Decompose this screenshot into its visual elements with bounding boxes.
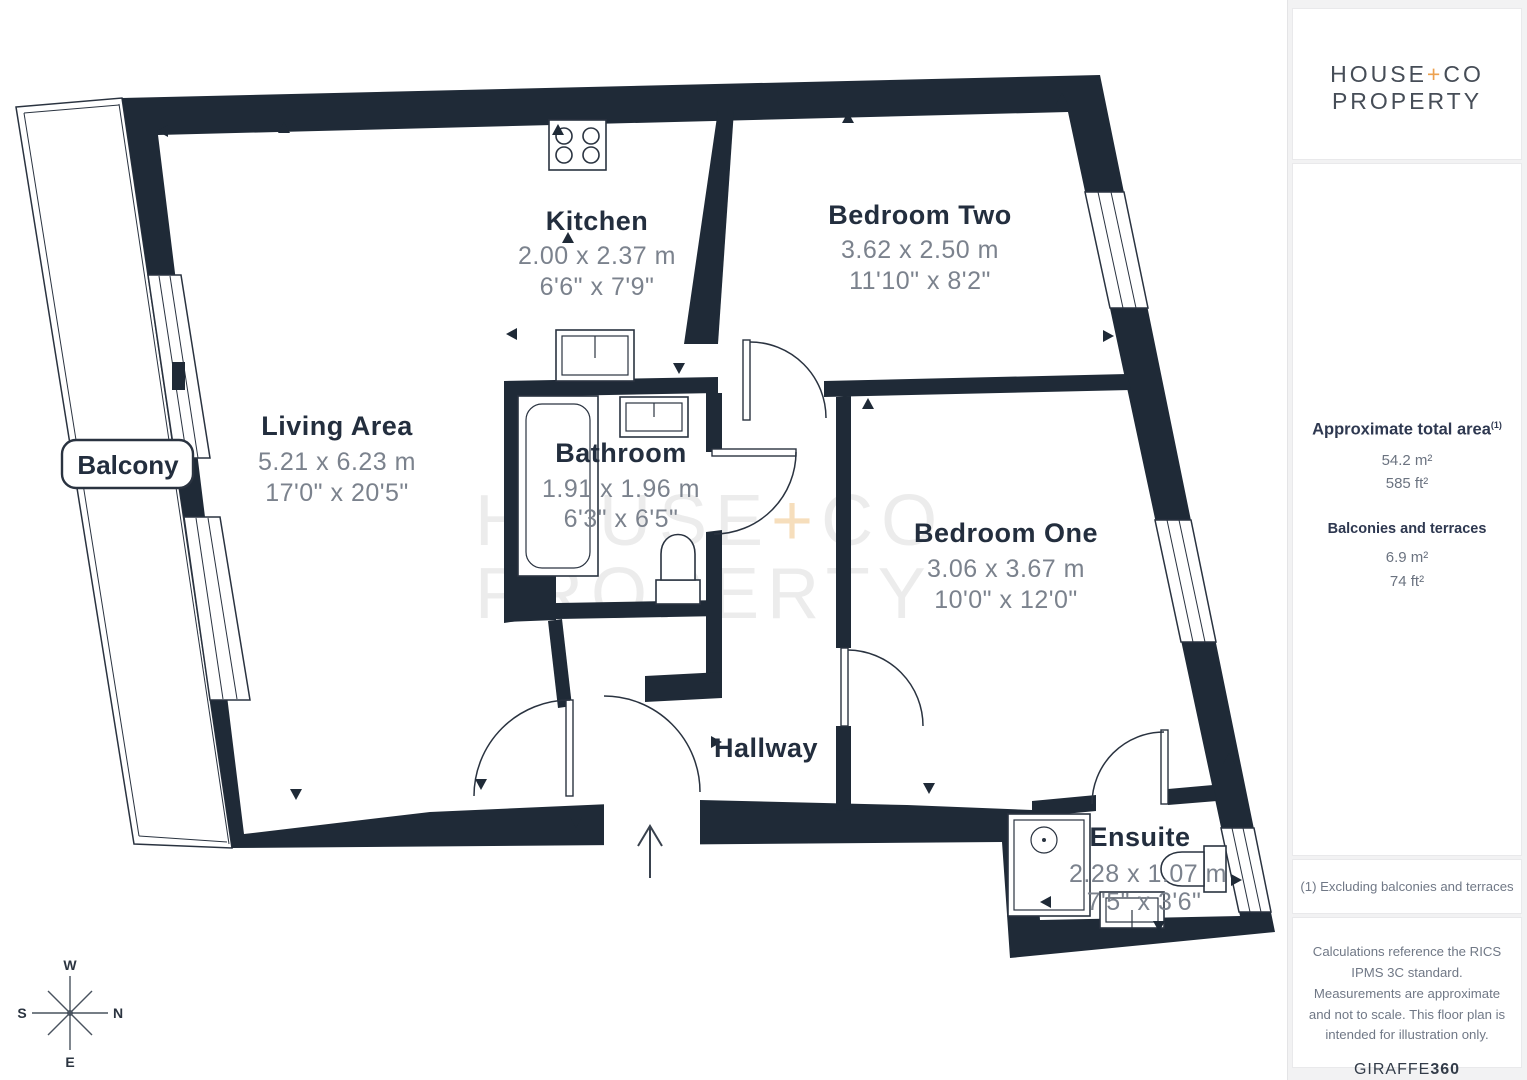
room-label-living-area: Living Area 5.21 x 6.23 m 17'0" x 20'5"	[258, 411, 416, 507]
compass-west: W	[63, 957, 77, 973]
svg-text:Bathroom: Bathroom	[555, 438, 687, 468]
footnote-card: (1) Excluding balconies and terraces	[1292, 859, 1522, 914]
svg-text:2.28 x 1.07 m: 2.28 x 1.07 m	[1069, 860, 1227, 888]
area-summary-card: Approximate total area(1) 54.2 m² 585 ft…	[1292, 163, 1522, 856]
room-label-bedroom-one: Bedroom One 3.06 x 3.67 m 10'0" x 12'0"	[914, 518, 1098, 614]
balconies-sqm: 6.9 m²	[1293, 547, 1521, 569]
svg-text:Bedroom Two: Bedroom Two	[828, 200, 1012, 230]
svg-text:5.21 x 6.23 m: 5.21 x 6.23 m	[258, 448, 416, 476]
total-area-sqft: 585 ft²	[1293, 473, 1521, 495]
brand-logo-line2: PROPERTY	[1293, 88, 1521, 115]
disclaimer-card: Calculations reference the RICS IPMS 3C …	[1292, 917, 1522, 1068]
footnote-marker: (1)	[1491, 420, 1502, 430]
info-sidebar: HOUSE+CO PROPERTY Approximate total area…	[1287, 0, 1527, 1080]
room-label-bathroom: Bathroom 1.91 x 1.96 m 6'3" x 6'5"	[542, 438, 700, 533]
balcony-label: Balcony	[62, 440, 193, 488]
svg-text:Kitchen: Kitchen	[546, 206, 649, 236]
total-area-heading: Approximate total area(1)	[1293, 420, 1521, 440]
svg-text:Ensuite: Ensuite	[1089, 822, 1190, 852]
room-label-bedroom-two: Bedroom Two 3.62 x 2.50 m 11'10" x 8'2"	[828, 200, 1012, 295]
total-area-sqm: 54.2 m²	[1293, 450, 1521, 472]
svg-text:3.62 x 2.50 m: 3.62 x 2.50 m	[841, 236, 999, 264]
compass-east: E	[65, 1054, 74, 1070]
svg-text:17'0" x 20'5": 17'0" x 20'5"	[265, 479, 409, 507]
balconies-heading: Balconies and terraces	[1293, 521, 1521, 537]
svg-text:6'6" x 7'9": 6'6" x 7'9"	[540, 273, 655, 301]
svg-text:2.00 x 2.37 m: 2.00 x 2.37 m	[518, 242, 676, 270]
entry-opening	[604, 788, 700, 852]
disclaimer-text: Calculations reference the RICS IPMS 3C …	[1293, 918, 1521, 1046]
svg-text:7'5" x 3'6": 7'5" x 3'6"	[1087, 888, 1202, 916]
compass-south: S	[17, 1005, 26, 1021]
kitchen-sink	[556, 330, 634, 381]
svg-text:1.91 x 1.96 m: 1.91 x 1.96 m	[542, 475, 700, 503]
giraffe360-credit: GIRAFFE360	[1293, 1061, 1521, 1079]
balconies-sqft: 74 ft²	[1293, 571, 1521, 593]
svg-text:11'10" x 8'2": 11'10" x 8'2"	[849, 267, 991, 295]
bathroom-toilet	[656, 535, 700, 605]
svg-text:Hallway: Hallway	[714, 733, 818, 763]
room-label-hallway: Hallway	[714, 733, 818, 763]
svg-text:Living Area: Living Area	[261, 411, 413, 441]
brand-plus-icon: +	[1427, 61, 1443, 87]
footnote-text: (1) Excluding balconies and terraces	[1293, 860, 1521, 894]
svg-text:10'0" x 12'0": 10'0" x 12'0"	[934, 586, 1078, 614]
floorplan-page: HOUSE+CO PROPERTY	[0, 0, 1527, 1080]
svg-text:Bedroom One: Bedroom One	[914, 518, 1098, 548]
compass-icon: W E S N	[17, 957, 123, 1070]
bathroom-sink	[620, 397, 688, 437]
floorplan-canvas: HOUSE+CO PROPERTY	[0, 0, 1287, 1080]
brand-logo-line1: HOUSE+CO	[1293, 61, 1521, 88]
balcony-label-text: Balcony	[77, 450, 179, 480]
svg-text:6'3" x 6'5": 6'3" x 6'5"	[564, 505, 679, 533]
brand-logo: HOUSE+CO PROPERTY	[1292, 8, 1522, 160]
svg-text:3.06 x 3.67 m: 3.06 x 3.67 m	[927, 555, 1085, 583]
compass-north: N	[113, 1005, 123, 1021]
floorplan-svg: HOUSE+CO PROPERTY	[0, 0, 1287, 1080]
